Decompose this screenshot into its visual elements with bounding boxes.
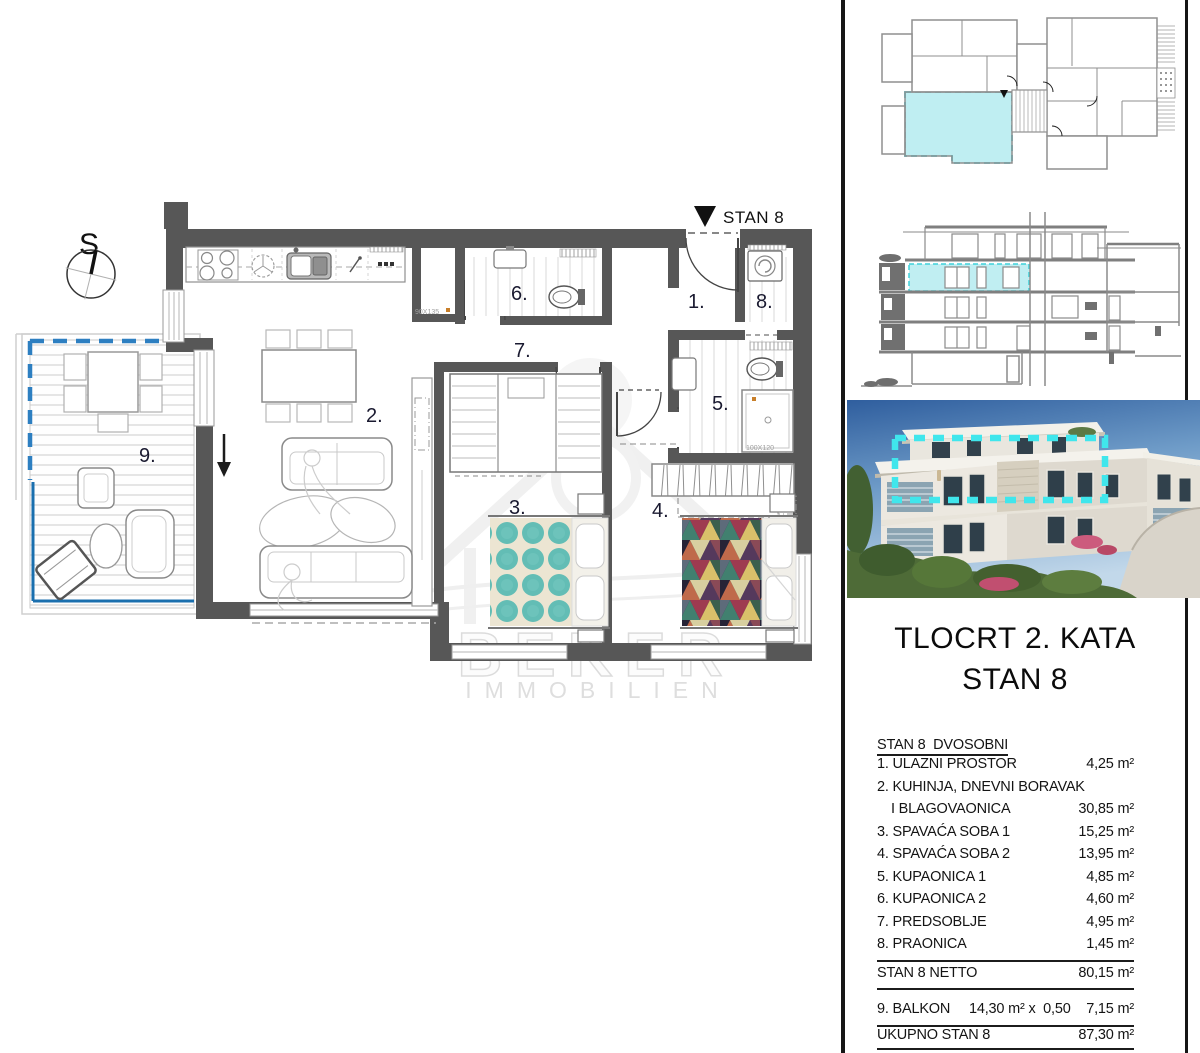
toilet-icon (747, 358, 783, 380)
sofa-two-seat (282, 438, 392, 490)
room-label-2: 2. (366, 405, 383, 427)
niche-dimension: 90X135 (415, 309, 439, 316)
room-name: 2. KUHINJA, DNEVNI BORAVAK (877, 779, 1085, 795)
compass: S (59, 228, 122, 306)
room-label-1: 1. (688, 291, 705, 313)
room-name: 1. ULAZNI PROSTOR (877, 756, 1017, 772)
kitchen: 90X135 (186, 247, 450, 316)
bed-double (680, 516, 798, 628)
total-value: 87,30 m² (1078, 1027, 1134, 1048)
room-name: I BLAGOVAONICA (877, 801, 1010, 817)
page: BEKER IMMOBILIEN (0, 0, 1200, 1053)
bed-double (488, 516, 610, 628)
sink-icon (672, 358, 696, 390)
nightstand (766, 630, 794, 642)
wardrobe (652, 464, 794, 496)
room-name: 6. KUPAONICA 2 (877, 891, 986, 907)
balcony-value: 7,15 m² (1086, 1001, 1134, 1025)
entrance-marker: STAN 8 (694, 206, 784, 227)
sink-icon (494, 250, 526, 268)
coffee-table (325, 490, 401, 550)
outdoor-pouf (90, 524, 122, 568)
sidebar-divider-line (841, 0, 845, 1053)
room-name: 8. PRAONICA (877, 936, 967, 952)
wardrobe (450, 374, 602, 476)
area-table: STAN 8 DVOSOBNI 1. ULAZNI PROSTOR4,25 m²… (877, 0, 1134, 1053)
netto-label: STAN 8 NETTO (877, 965, 977, 988)
room-area: 4,60 m² (1086, 891, 1134, 907)
total-label: UKUPNO STAN 8 (877, 1027, 990, 1048)
netto-row: STAN 8 NETTO80,15 m² (877, 960, 1134, 990)
room-area: 4,25 m² (1086, 756, 1134, 772)
area-row: 5. KUPAONICA 14,85 m² (877, 869, 1134, 889)
room-label-3: 3. (509, 497, 526, 519)
area-row: 4. SPAVAĆA SOBA 213,95 m² (877, 846, 1134, 866)
room-label-6: 6. (511, 283, 528, 305)
area-row: 8. PRAONICA1,45 m² (877, 936, 1134, 956)
detail-dot (446, 308, 450, 312)
watermark-sub: IMMOBILIEN (465, 677, 730, 703)
area-row: 1. ULAZNI PROSTOR4,25 m² (877, 756, 1134, 776)
room-area: 1,45 m² (1086, 936, 1134, 952)
room-area: 13,95 m² (1078, 846, 1134, 862)
entrance-arrow-icon (694, 206, 716, 227)
room-label-8: 8. (756, 291, 773, 313)
bathroom-1: 100X120 (672, 340, 793, 453)
area-table-header: STAN 8 DVOSOBNI (877, 737, 1008, 756)
outdoor-table (88, 352, 138, 412)
detail-dot (752, 397, 756, 401)
room-name: 7. PREDSOBLJE (877, 914, 986, 930)
room-label-9: 9. (139, 445, 156, 467)
room-label-5: 5. (712, 393, 729, 415)
room-name: 3. SPAVAĆA SOBA 1 (877, 824, 1010, 840)
toilet-icon (549, 286, 585, 308)
washing-machine-icon (748, 251, 782, 281)
area-row: I BLAGOVAONICA30,85 m² (877, 801, 1134, 821)
shower-icon: 100X120 (742, 390, 793, 452)
total-row: UKUPNO STAN 887,30 m² (877, 1025, 1134, 1050)
room-area: 15,25 m² (1078, 824, 1134, 840)
room-area: 4,95 m² (1086, 914, 1134, 930)
nightstand (578, 630, 604, 642)
dining-set (262, 330, 356, 422)
entrance-marker-label: STAN 8 (723, 208, 784, 227)
room-name: 4. SPAVAĆA SOBA 2 (877, 846, 1010, 862)
balcony-row: 9. BALKON14,30 m² x 0,507,15 m² (877, 998, 1134, 1027)
room-label-4: 4. (652, 500, 669, 522)
balcony-formula: 14,30 m² x 0,50 (969, 1001, 1071, 1017)
area-row: 2. KUHINJA, DNEVNI BORAVAK (877, 779, 1134, 799)
nightstand (770, 494, 795, 512)
living-room (217, 330, 432, 610)
area-row: 7. PREDSOBLJE4,95 m² (877, 914, 1134, 934)
direction-arrow (217, 434, 231, 477)
bathroom-2 (465, 246, 602, 316)
room-area: 4,85 m² (1086, 869, 1134, 885)
room-label-7: 7. (514, 340, 531, 362)
floor-plan-drawing: BEKER IMMOBILIEN (0, 0, 845, 1053)
area-row: 3. SPAVAĆA SOBA 115,25 m² (877, 824, 1134, 844)
netto-value: 80,15 m² (1078, 965, 1134, 988)
room-area: 30,85 m² (1078, 801, 1134, 817)
nightstand (578, 494, 604, 514)
area-row: 6. KUPAONICA 24,60 m² (877, 891, 1134, 911)
balcony-terrace (16, 334, 200, 614)
room-name: 5. KUPAONICA 1 (877, 869, 986, 885)
balcony-label: 9. BALKON (877, 1001, 950, 1025)
shower-dimension: 100X120 (746, 445, 774, 452)
